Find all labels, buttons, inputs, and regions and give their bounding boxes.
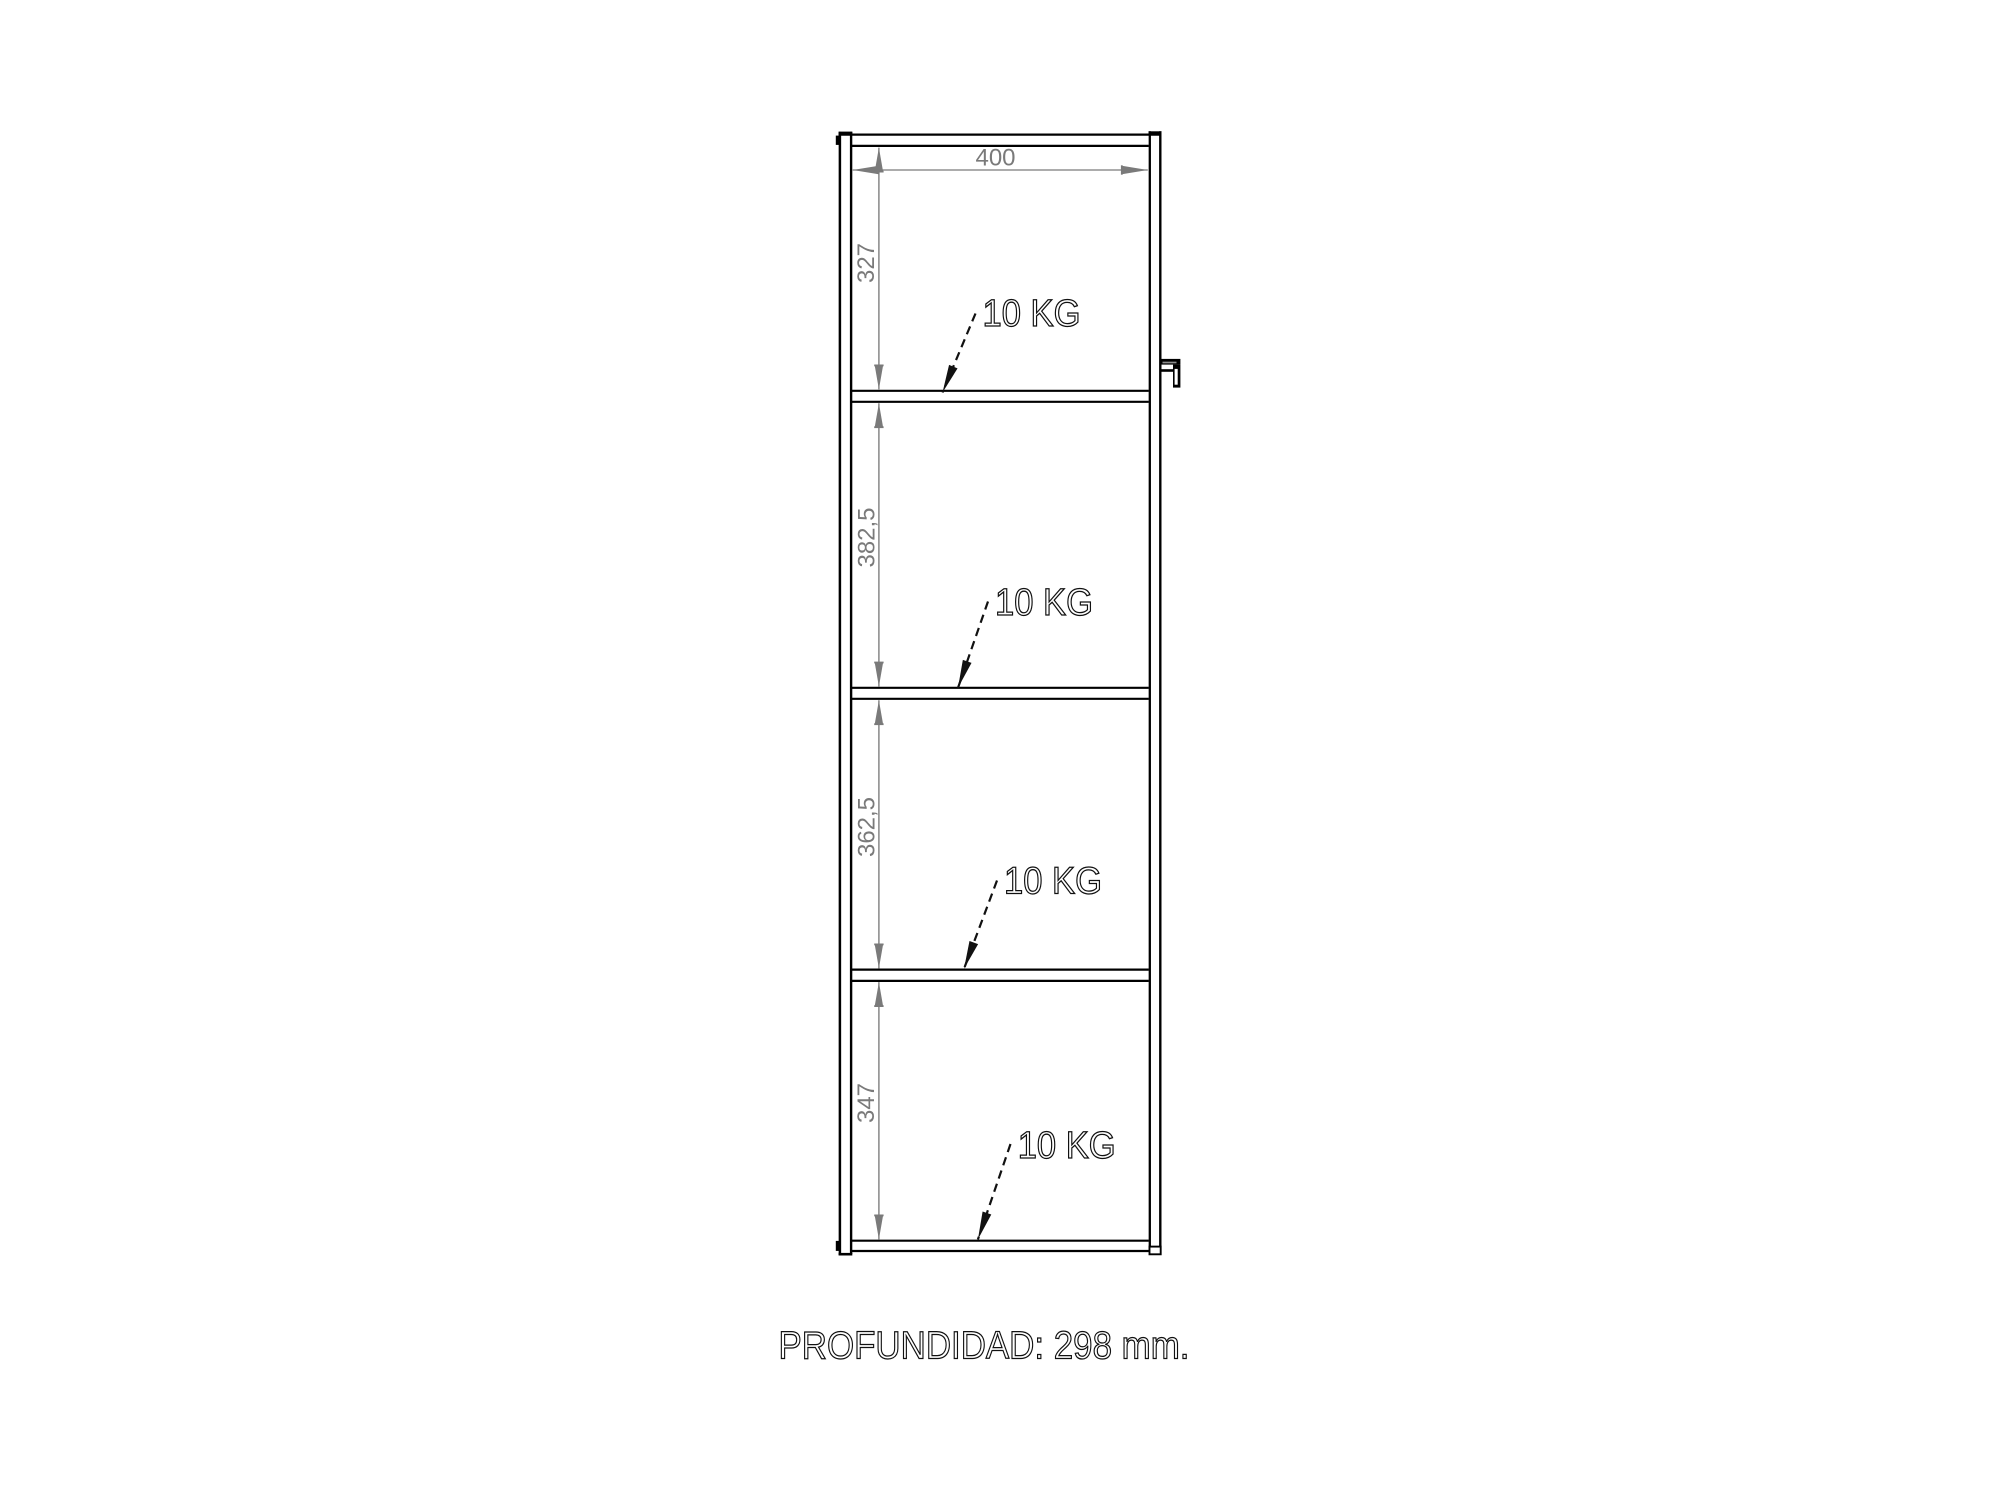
svg-text:347: 347 bbox=[853, 1083, 880, 1123]
svg-text:400: 400 bbox=[975, 145, 1015, 172]
svg-text:PROFUNDIDAD: 298 mm.: PROFUNDIDAD: 298 mm. bbox=[779, 1325, 1190, 1368]
svg-text:10 KG: 10 KG bbox=[983, 293, 1081, 335]
svg-text:10 KG: 10 KG bbox=[1004, 861, 1102, 903]
svg-text:362,5: 362,5 bbox=[854, 797, 881, 857]
svg-text:382,5: 382,5 bbox=[854, 507, 881, 567]
svg-text:10 KG: 10 KG bbox=[995, 582, 1093, 624]
svg-text:327: 327 bbox=[853, 243, 880, 283]
svg-text:10 KG: 10 KG bbox=[1018, 1125, 1116, 1167]
